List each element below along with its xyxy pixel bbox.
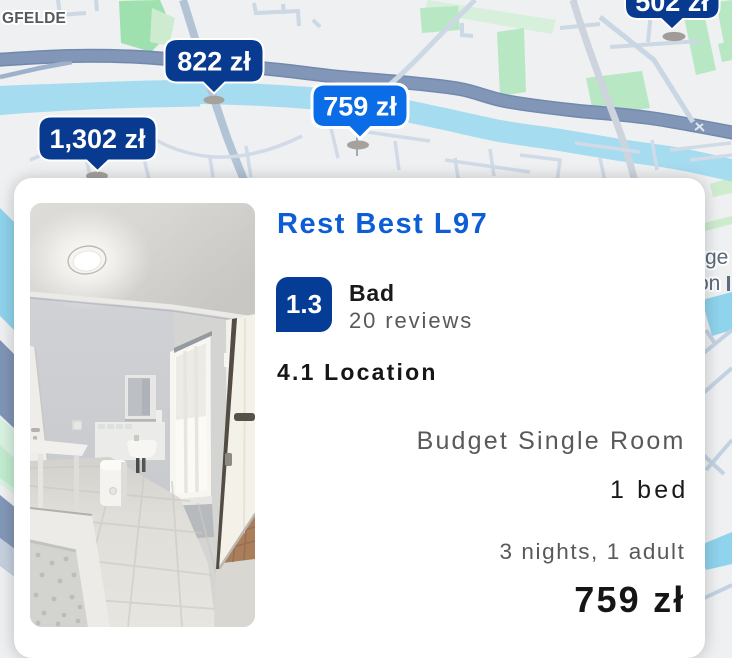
svg-text:GFELDE: GFELDE [2,10,66,27]
svg-text:1,302 zł: 1,302 zł [49,124,146,154]
svg-text:822 zł: 822 zł [177,47,251,77]
svg-text:502 zł: 502 zł [635,0,709,17]
svg-text:759 zł: 759 zł [323,92,397,122]
